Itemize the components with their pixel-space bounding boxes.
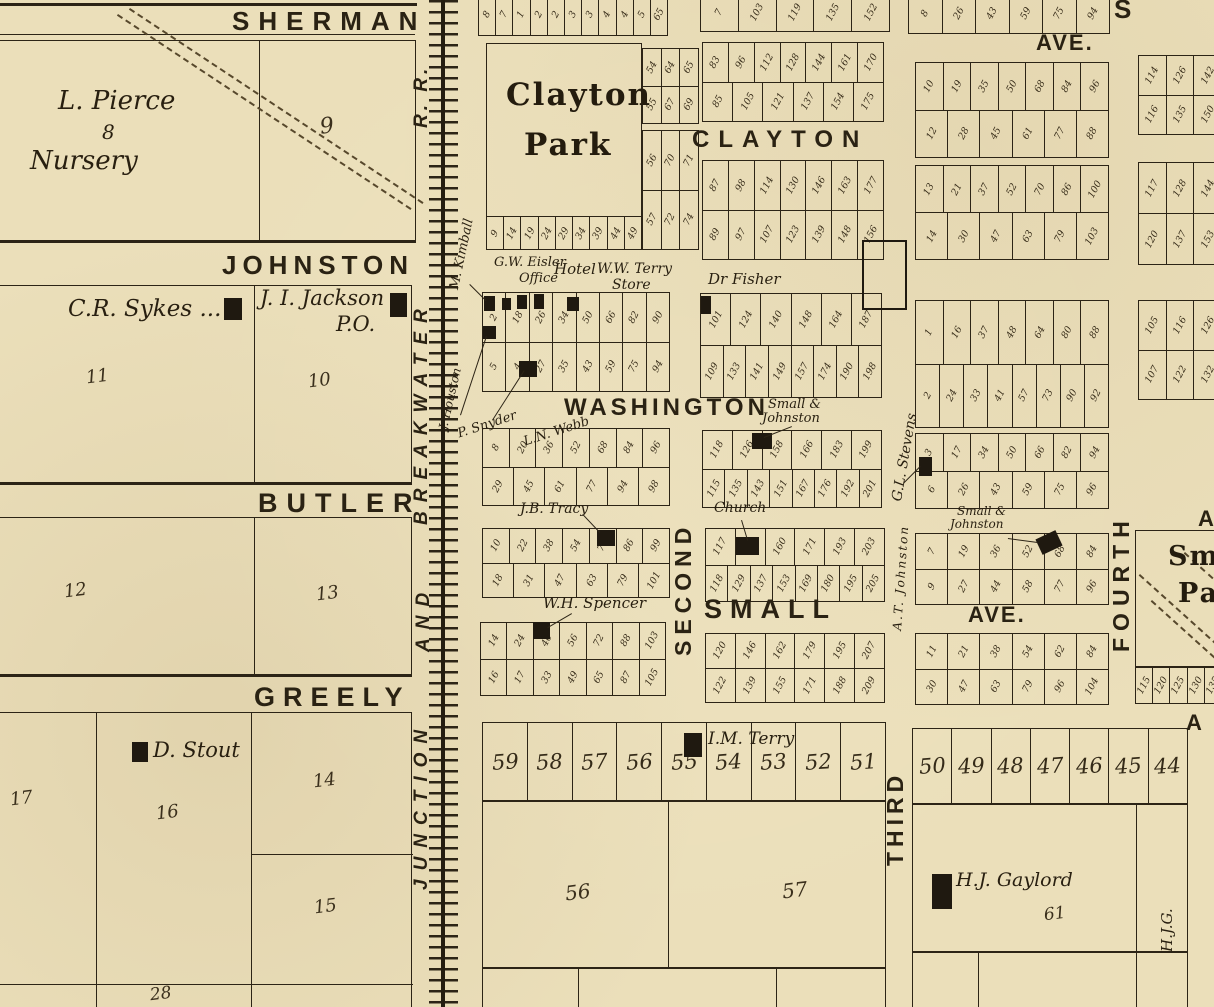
lot-number: 118 bbox=[708, 439, 726, 460]
lot: 29 bbox=[483, 468, 513, 506]
lot: 19 bbox=[943, 63, 971, 110]
lot-number: 1 bbox=[923, 327, 936, 338]
lot-number: 142 bbox=[1199, 65, 1214, 86]
lot-number: 14 bbox=[486, 633, 501, 649]
lot-number: 149 bbox=[771, 361, 789, 382]
street-label-ave-north: AVE. bbox=[1036, 32, 1094, 54]
lot-number: 77 bbox=[1053, 579, 1068, 595]
lot-row: 8997107123139148156 bbox=[703, 210, 883, 260]
lot-number: 50 bbox=[1004, 444, 1019, 460]
lot: 170 bbox=[857, 43, 883, 82]
block-clayton-north-block: 839611212814416117085105121137154175 bbox=[702, 42, 884, 122]
lot: 120 bbox=[1139, 214, 1166, 264]
lot: 8 bbox=[909, 0, 942, 33]
lot-number: 112 bbox=[758, 52, 776, 73]
lot-number: 187 bbox=[857, 309, 875, 330]
lot: 117 bbox=[706, 529, 735, 565]
lot: 51 bbox=[840, 723, 885, 801]
lot-number: 79 bbox=[1053, 228, 1068, 244]
lot-number: 139 bbox=[741, 675, 759, 696]
lot: 103 bbox=[639, 623, 665, 659]
lot: 3 bbox=[564, 0, 581, 35]
lot-number: 96 bbox=[1053, 679, 1068, 695]
lot-row: 224334157739092 bbox=[916, 364, 1108, 428]
lot: 92 bbox=[1084, 365, 1108, 428]
lot-number: 124 bbox=[737, 309, 755, 330]
lot: 157 bbox=[791, 346, 814, 397]
street-label-s-partial: S bbox=[1114, 0, 1131, 22]
plat-map: 8712233445659141924293439444954646555676… bbox=[0, 0, 1214, 1007]
lot: 120 bbox=[1152, 667, 1169, 703]
lot: 141 bbox=[745, 346, 768, 397]
railroad-label-rr: R. R. bbox=[412, 65, 431, 128]
lot: 41 bbox=[987, 365, 1011, 428]
block-third-fourth-block-1: 10193550688496122845617788 bbox=[915, 62, 1109, 158]
lot-number: 68 bbox=[1032, 78, 1047, 94]
lot-number: 84 bbox=[1085, 543, 1100, 559]
lot: 10 bbox=[483, 529, 509, 563]
lot-number: 177 bbox=[861, 175, 879, 196]
lot-number-8-pierce: 8 bbox=[102, 122, 115, 142]
lot-number: 10 bbox=[488, 538, 503, 554]
lot: 49 bbox=[951, 729, 990, 803]
lot-number: 52 bbox=[1004, 181, 1019, 197]
lot-number: 44 bbox=[1154, 753, 1182, 779]
owner-label-ji-jackson: J. I. Jackson bbox=[260, 288, 384, 309]
lot-number: 18 bbox=[510, 309, 525, 325]
lot: 34 bbox=[572, 217, 589, 249]
lot-row: 50494847464544 bbox=[913, 729, 1187, 803]
lot-number: 107 bbox=[758, 224, 776, 245]
lot: 130 bbox=[1187, 667, 1204, 703]
lot-divider bbox=[1136, 953, 1137, 1007]
lot: 84 bbox=[1076, 534, 1108, 569]
lot: 27 bbox=[947, 570, 979, 605]
lot-number: 56 bbox=[565, 633, 580, 649]
lot-number: 130 bbox=[784, 175, 802, 196]
lot: 205 bbox=[862, 566, 884, 602]
lot: 1 bbox=[916, 301, 943, 364]
building-outline-square bbox=[862, 240, 907, 310]
lot-number: 171 bbox=[801, 675, 819, 696]
lot: 125 bbox=[1169, 667, 1186, 703]
lot-number: 19 bbox=[522, 225, 537, 241]
block-small-ne-block: 120146162179195207122139155171188209 bbox=[705, 633, 885, 703]
building-dr-fisher bbox=[701, 296, 711, 314]
lot: 47 bbox=[947, 670, 979, 705]
lot: 47 bbox=[979, 213, 1011, 259]
lot: 77 bbox=[1044, 570, 1076, 605]
block-third-fourth-block-5: 7193652688492744587796 bbox=[915, 533, 1109, 605]
lot-row: 120137153 bbox=[1139, 213, 1214, 264]
lot: 89 bbox=[703, 211, 728, 260]
lot-number: 174 bbox=[816, 361, 834, 382]
lot-row: 567071 bbox=[643, 131, 698, 190]
lot-number: 9 bbox=[489, 228, 502, 239]
block-spencer-block: 142440567288103161733496587105 bbox=[480, 622, 666, 696]
lot-number: 96 bbox=[1087, 78, 1102, 94]
lot-row: 294561779498 bbox=[483, 467, 669, 506]
lot: 135 bbox=[1204, 667, 1214, 703]
lot: 97 bbox=[728, 211, 754, 260]
lot-number: 31 bbox=[522, 572, 537, 588]
lot-divider bbox=[668, 801, 669, 967]
lot: 84 bbox=[616, 429, 643, 467]
lot-number: 96 bbox=[1085, 482, 1100, 498]
lot: 28 bbox=[947, 111, 979, 158]
lot-number: 126 bbox=[1199, 315, 1214, 336]
lot: 176 bbox=[814, 470, 836, 508]
lot-number-28-partial: 28 bbox=[149, 985, 173, 1005]
lot-number: 84 bbox=[622, 440, 637, 456]
lot-number: 4 bbox=[601, 9, 614, 20]
lot-number: 96 bbox=[648, 440, 663, 456]
lot-divider bbox=[251, 713, 252, 1007]
lot: 37 bbox=[970, 301, 998, 364]
lot-number: 188 bbox=[831, 675, 849, 696]
lot-number: 166 bbox=[798, 439, 816, 460]
lot-number: 77 bbox=[1053, 126, 1068, 142]
lot-number: 137 bbox=[1171, 228, 1189, 249]
lot-number: 164 bbox=[827, 309, 845, 330]
lot: 142 bbox=[1193, 56, 1214, 95]
lot-number: 66 bbox=[1032, 444, 1047, 460]
lot: 139 bbox=[805, 211, 831, 260]
lot: 44 bbox=[979, 570, 1011, 605]
lot-number: 61 bbox=[1020, 126, 1035, 142]
lot-number: 45 bbox=[988, 126, 1003, 142]
owner-label-at-johnston: A.T. Johnston bbox=[891, 524, 910, 630]
lot-number: 2 bbox=[488, 312, 501, 323]
lot-number: 19 bbox=[949, 78, 964, 94]
lot-number: 21 bbox=[949, 181, 964, 197]
lot-number: 64 bbox=[663, 59, 678, 75]
owner-label-dr-fisher: Dr Fisher bbox=[708, 272, 781, 287]
lot-number: 26 bbox=[951, 5, 966, 21]
lot: 137 bbox=[793, 83, 823, 122]
lot-number: 72 bbox=[663, 212, 678, 228]
lot-number: 17 bbox=[949, 444, 964, 460]
lot: 120 bbox=[706, 634, 735, 668]
lot-row: 85105121137154175 bbox=[703, 82, 883, 122]
lot-number-13: 13 bbox=[315, 584, 340, 605]
lot: 155 bbox=[765, 669, 795, 703]
lot: 61 bbox=[1012, 111, 1044, 158]
lot: 104 bbox=[1076, 670, 1108, 705]
park-label-clayton-2: Park bbox=[524, 130, 612, 161]
lot: 9 bbox=[916, 570, 947, 605]
lot-number: 45 bbox=[522, 478, 537, 494]
lot-number: 63 bbox=[1020, 228, 1035, 244]
lot-number: 54 bbox=[568, 538, 583, 554]
lot-number: 198 bbox=[861, 361, 879, 382]
lot-number: 103 bbox=[643, 630, 661, 651]
lot-number: 151 bbox=[772, 478, 790, 499]
lot-number: 126 bbox=[1171, 65, 1189, 86]
lot-row: 8396112128144161170 bbox=[703, 43, 883, 82]
lot-number: 4 bbox=[618, 9, 631, 20]
lot: 98 bbox=[638, 468, 669, 506]
lot: 56 bbox=[643, 131, 661, 190]
lot: 73 bbox=[1036, 365, 1060, 428]
lot-number: 192 bbox=[839, 478, 857, 499]
lot: 68 bbox=[1025, 63, 1053, 110]
lot: 90 bbox=[1060, 365, 1084, 428]
lot-number: 137 bbox=[752, 573, 770, 594]
owner-label-small-and-1: Small & bbox=[768, 398, 821, 411]
lot: 64 bbox=[1025, 301, 1053, 364]
block-top-strip-west: 871223344565 bbox=[478, 0, 668, 36]
lot: 63 bbox=[979, 670, 1011, 705]
lot-number: 72 bbox=[592, 633, 607, 649]
lot-number: 14 bbox=[924, 228, 939, 244]
lot: 195 bbox=[824, 634, 854, 668]
street-label-johnston: JOHNSTON bbox=[222, 252, 414, 278]
lot-number: 65 bbox=[592, 669, 607, 685]
street-label-small: SMALL bbox=[704, 596, 837, 623]
lot-number: 153 bbox=[1199, 228, 1214, 249]
lot-number: 16 bbox=[949, 324, 964, 340]
lot: 139 bbox=[735, 669, 765, 703]
lot: 195 bbox=[839, 566, 861, 602]
lot-number: 97 bbox=[734, 227, 749, 243]
lot: 37 bbox=[970, 166, 998, 212]
lot-number: 59 bbox=[1020, 482, 1035, 498]
lot-number: 30 bbox=[956, 228, 971, 244]
lot: 167 bbox=[792, 470, 814, 508]
lot: 107 bbox=[754, 211, 780, 260]
lot: 36 bbox=[979, 534, 1011, 569]
lot-number: 54 bbox=[1020, 643, 1035, 659]
block-third-fourth-block-3: 1163748648088224334157739092 bbox=[915, 300, 1109, 428]
lot-number: 49 bbox=[625, 225, 640, 241]
lot-number: 101 bbox=[645, 570, 663, 591]
lot: 103 bbox=[738, 0, 776, 31]
lot-number: 47 bbox=[988, 228, 1003, 244]
lot: 2 bbox=[547, 0, 564, 35]
lot-number: 57 bbox=[644, 212, 659, 228]
lot-number: 170 bbox=[861, 52, 879, 73]
lot: 153 bbox=[1193, 214, 1214, 264]
lot: 96 bbox=[1080, 63, 1108, 110]
lot-number: 47 bbox=[553, 572, 568, 588]
lot: 77 bbox=[576, 468, 607, 506]
lot: 188 bbox=[824, 669, 854, 703]
lot-number: 2 bbox=[532, 9, 545, 20]
lot: 96 bbox=[1044, 670, 1076, 705]
lot-number: 74 bbox=[681, 212, 696, 228]
lot: 117 bbox=[1139, 163, 1166, 213]
lot: 72 bbox=[586, 623, 612, 659]
lot-number: 57 bbox=[580, 749, 608, 775]
lot-number: 209 bbox=[860, 675, 878, 696]
building-hotel bbox=[534, 294, 544, 309]
lot: 3 bbox=[581, 0, 598, 35]
lot: 207 bbox=[854, 634, 884, 668]
lot-number: 59 bbox=[603, 359, 618, 375]
lot-number: 114 bbox=[758, 175, 776, 196]
lot-number: 87 bbox=[618, 669, 633, 685]
lot: 56 bbox=[559, 623, 585, 659]
lot-number: 82 bbox=[1059, 444, 1074, 460]
lot-number: 54 bbox=[644, 59, 659, 75]
lot: 114 bbox=[1139, 56, 1166, 95]
lot-number: 41 bbox=[992, 388, 1007, 404]
lot: 47 bbox=[544, 564, 575, 598]
lot: 80 bbox=[1053, 301, 1081, 364]
block-pierce-nursery-block bbox=[0, 40, 416, 243]
lot: 160 bbox=[765, 529, 795, 565]
lot: 14 bbox=[481, 623, 506, 659]
lot: 63 bbox=[1012, 213, 1044, 259]
lot-number-14: 14 bbox=[312, 771, 337, 792]
lot: 118 bbox=[703, 431, 732, 469]
lot: 10 bbox=[916, 63, 943, 110]
lot-number: 54 bbox=[715, 749, 743, 775]
lot-row: 117128144 bbox=[1139, 163, 1214, 213]
lot-number: 128 bbox=[784, 52, 802, 73]
lot-number: 51 bbox=[849, 749, 877, 775]
lot-number: 24 bbox=[512, 633, 527, 649]
lot-row: 107122132 bbox=[1139, 350, 1214, 400]
building-jb-tracy bbox=[597, 530, 615, 546]
lot-number: 90 bbox=[650, 309, 665, 325]
lot: 84 bbox=[1053, 63, 1081, 110]
lot-number: 44 bbox=[608, 225, 623, 241]
lot: 88 bbox=[612, 623, 638, 659]
lot-number: 117 bbox=[1143, 177, 1161, 198]
lot-number: 3 bbox=[584, 9, 597, 20]
lot-number: 10 bbox=[922, 78, 937, 94]
lot-number: 26 bbox=[956, 482, 971, 498]
lot-number: 8 bbox=[490, 442, 503, 453]
lot-number: 96 bbox=[1085, 579, 1100, 595]
lot: 114 bbox=[754, 161, 780, 210]
block-third-fourth-block-6: 1121385462843047637996104 bbox=[915, 633, 1109, 705]
block-fisher-block: 1011241401481641871091331411491571741901… bbox=[700, 293, 882, 398]
lot-number: 66 bbox=[603, 309, 618, 325]
lot-number: 180 bbox=[819, 573, 837, 594]
lot-number: 143 bbox=[749, 478, 767, 499]
block-block-below-gaylord bbox=[912, 952, 1188, 1007]
lot: 193 bbox=[824, 529, 854, 565]
lot-row: 8798114130146163177 bbox=[703, 161, 883, 210]
lot: 8 bbox=[479, 0, 495, 35]
lot-row: 161733496587105 bbox=[481, 659, 665, 696]
lot: 61 bbox=[544, 468, 575, 506]
street-label-fourth: FOURTH bbox=[1110, 514, 1133, 652]
lot-number: 132 bbox=[1199, 364, 1214, 385]
lot-number: 119 bbox=[786, 1, 804, 22]
lot-number: 120 bbox=[1152, 674, 1169, 695]
lot-number: 56 bbox=[644, 152, 659, 168]
lot: 31 bbox=[513, 564, 544, 598]
lot: 59 bbox=[1009, 0, 1043, 33]
lot-number: 150 bbox=[1199, 104, 1214, 125]
lot: 146 bbox=[805, 161, 831, 210]
lot-number: 21 bbox=[956, 643, 971, 659]
lot-number: 80 bbox=[1059, 324, 1074, 340]
lot-number: 8 bbox=[481, 9, 494, 20]
lot: 96 bbox=[728, 43, 754, 82]
lot: 94 bbox=[1080, 434, 1108, 471]
lot-number: 148 bbox=[836, 224, 854, 245]
lot-number: 77 bbox=[584, 478, 599, 494]
lot-number: 123 bbox=[784, 224, 802, 245]
lot: 105 bbox=[732, 83, 762, 122]
park-label-small: Small bbox=[1168, 543, 1214, 570]
lot: 130 bbox=[780, 161, 806, 210]
lot-row: 1430476379103 bbox=[916, 212, 1108, 259]
lot-number: 116 bbox=[1171, 315, 1189, 336]
lot-number: 125 bbox=[1169, 674, 1186, 695]
lot-number: 83 bbox=[708, 54, 723, 70]
lot: 70 bbox=[1025, 166, 1053, 212]
lot-number: 94 bbox=[615, 478, 630, 494]
lot: 24 bbox=[506, 623, 532, 659]
lot: 128 bbox=[1166, 163, 1194, 213]
lot-number: 22 bbox=[515, 538, 530, 554]
building-eisler-office bbox=[517, 295, 527, 309]
lot-row: 1831476379101 bbox=[483, 563, 669, 598]
lot-number: 63 bbox=[584, 572, 599, 588]
lot-row: 112138546284 bbox=[916, 634, 1108, 669]
lot: 75 bbox=[1042, 0, 1076, 33]
lot: 63 bbox=[576, 564, 607, 598]
lot-number: 84 bbox=[1085, 643, 1100, 659]
lot-number: 56 bbox=[625, 749, 653, 775]
lot: 48 bbox=[998, 301, 1026, 364]
lot: 50 bbox=[576, 293, 599, 342]
lot-number: 73 bbox=[1040, 388, 1055, 404]
lot-number: 86 bbox=[1059, 181, 1074, 197]
lot: 175 bbox=[853, 83, 883, 122]
building-eisler-1 bbox=[484, 296, 495, 311]
lot-number: 17 bbox=[512, 669, 527, 685]
lot-number: 6 bbox=[925, 484, 938, 495]
owner-label-johnston-1: Johnston bbox=[762, 412, 820, 425]
lot: 100 bbox=[1080, 166, 1108, 212]
lot: 101 bbox=[638, 564, 669, 598]
block-fourth-east-block-2: 117128144120137153 bbox=[1138, 162, 1214, 265]
owner-label-wh-spencer: W.H. Spencer bbox=[543, 596, 646, 611]
lot-number: 171 bbox=[801, 536, 819, 557]
lot-number: 153 bbox=[775, 573, 793, 594]
lot: 35 bbox=[552, 343, 575, 392]
lot: 179 bbox=[794, 634, 824, 668]
lot-number: 37 bbox=[977, 181, 992, 197]
lot: 198 bbox=[858, 346, 881, 397]
lot-number: 26 bbox=[533, 309, 548, 325]
lot-number: 82 bbox=[627, 309, 642, 325]
lot-number: 175 bbox=[859, 91, 877, 112]
lot-number: 58 bbox=[1020, 579, 1035, 595]
lot-row: 10193550688496 bbox=[916, 63, 1108, 110]
lot-number-61: 61 bbox=[1043, 905, 1067, 925]
lot-number: 100 bbox=[1086, 178, 1104, 199]
lot: 17 bbox=[506, 660, 532, 696]
lot-number: 130 bbox=[1187, 674, 1204, 695]
lot: 79 bbox=[607, 564, 638, 598]
block-block-lots-56-57 bbox=[482, 800, 886, 968]
lot-number: 3 bbox=[567, 9, 580, 20]
lot-number: 193 bbox=[831, 536, 849, 557]
lot-row: 109133141149157174190198 bbox=[701, 345, 881, 397]
building-ji-jackson-po bbox=[390, 293, 407, 317]
lot-number: 49 bbox=[565, 669, 580, 685]
lot: 135 bbox=[813, 0, 851, 31]
lot: 68 bbox=[589, 429, 616, 467]
